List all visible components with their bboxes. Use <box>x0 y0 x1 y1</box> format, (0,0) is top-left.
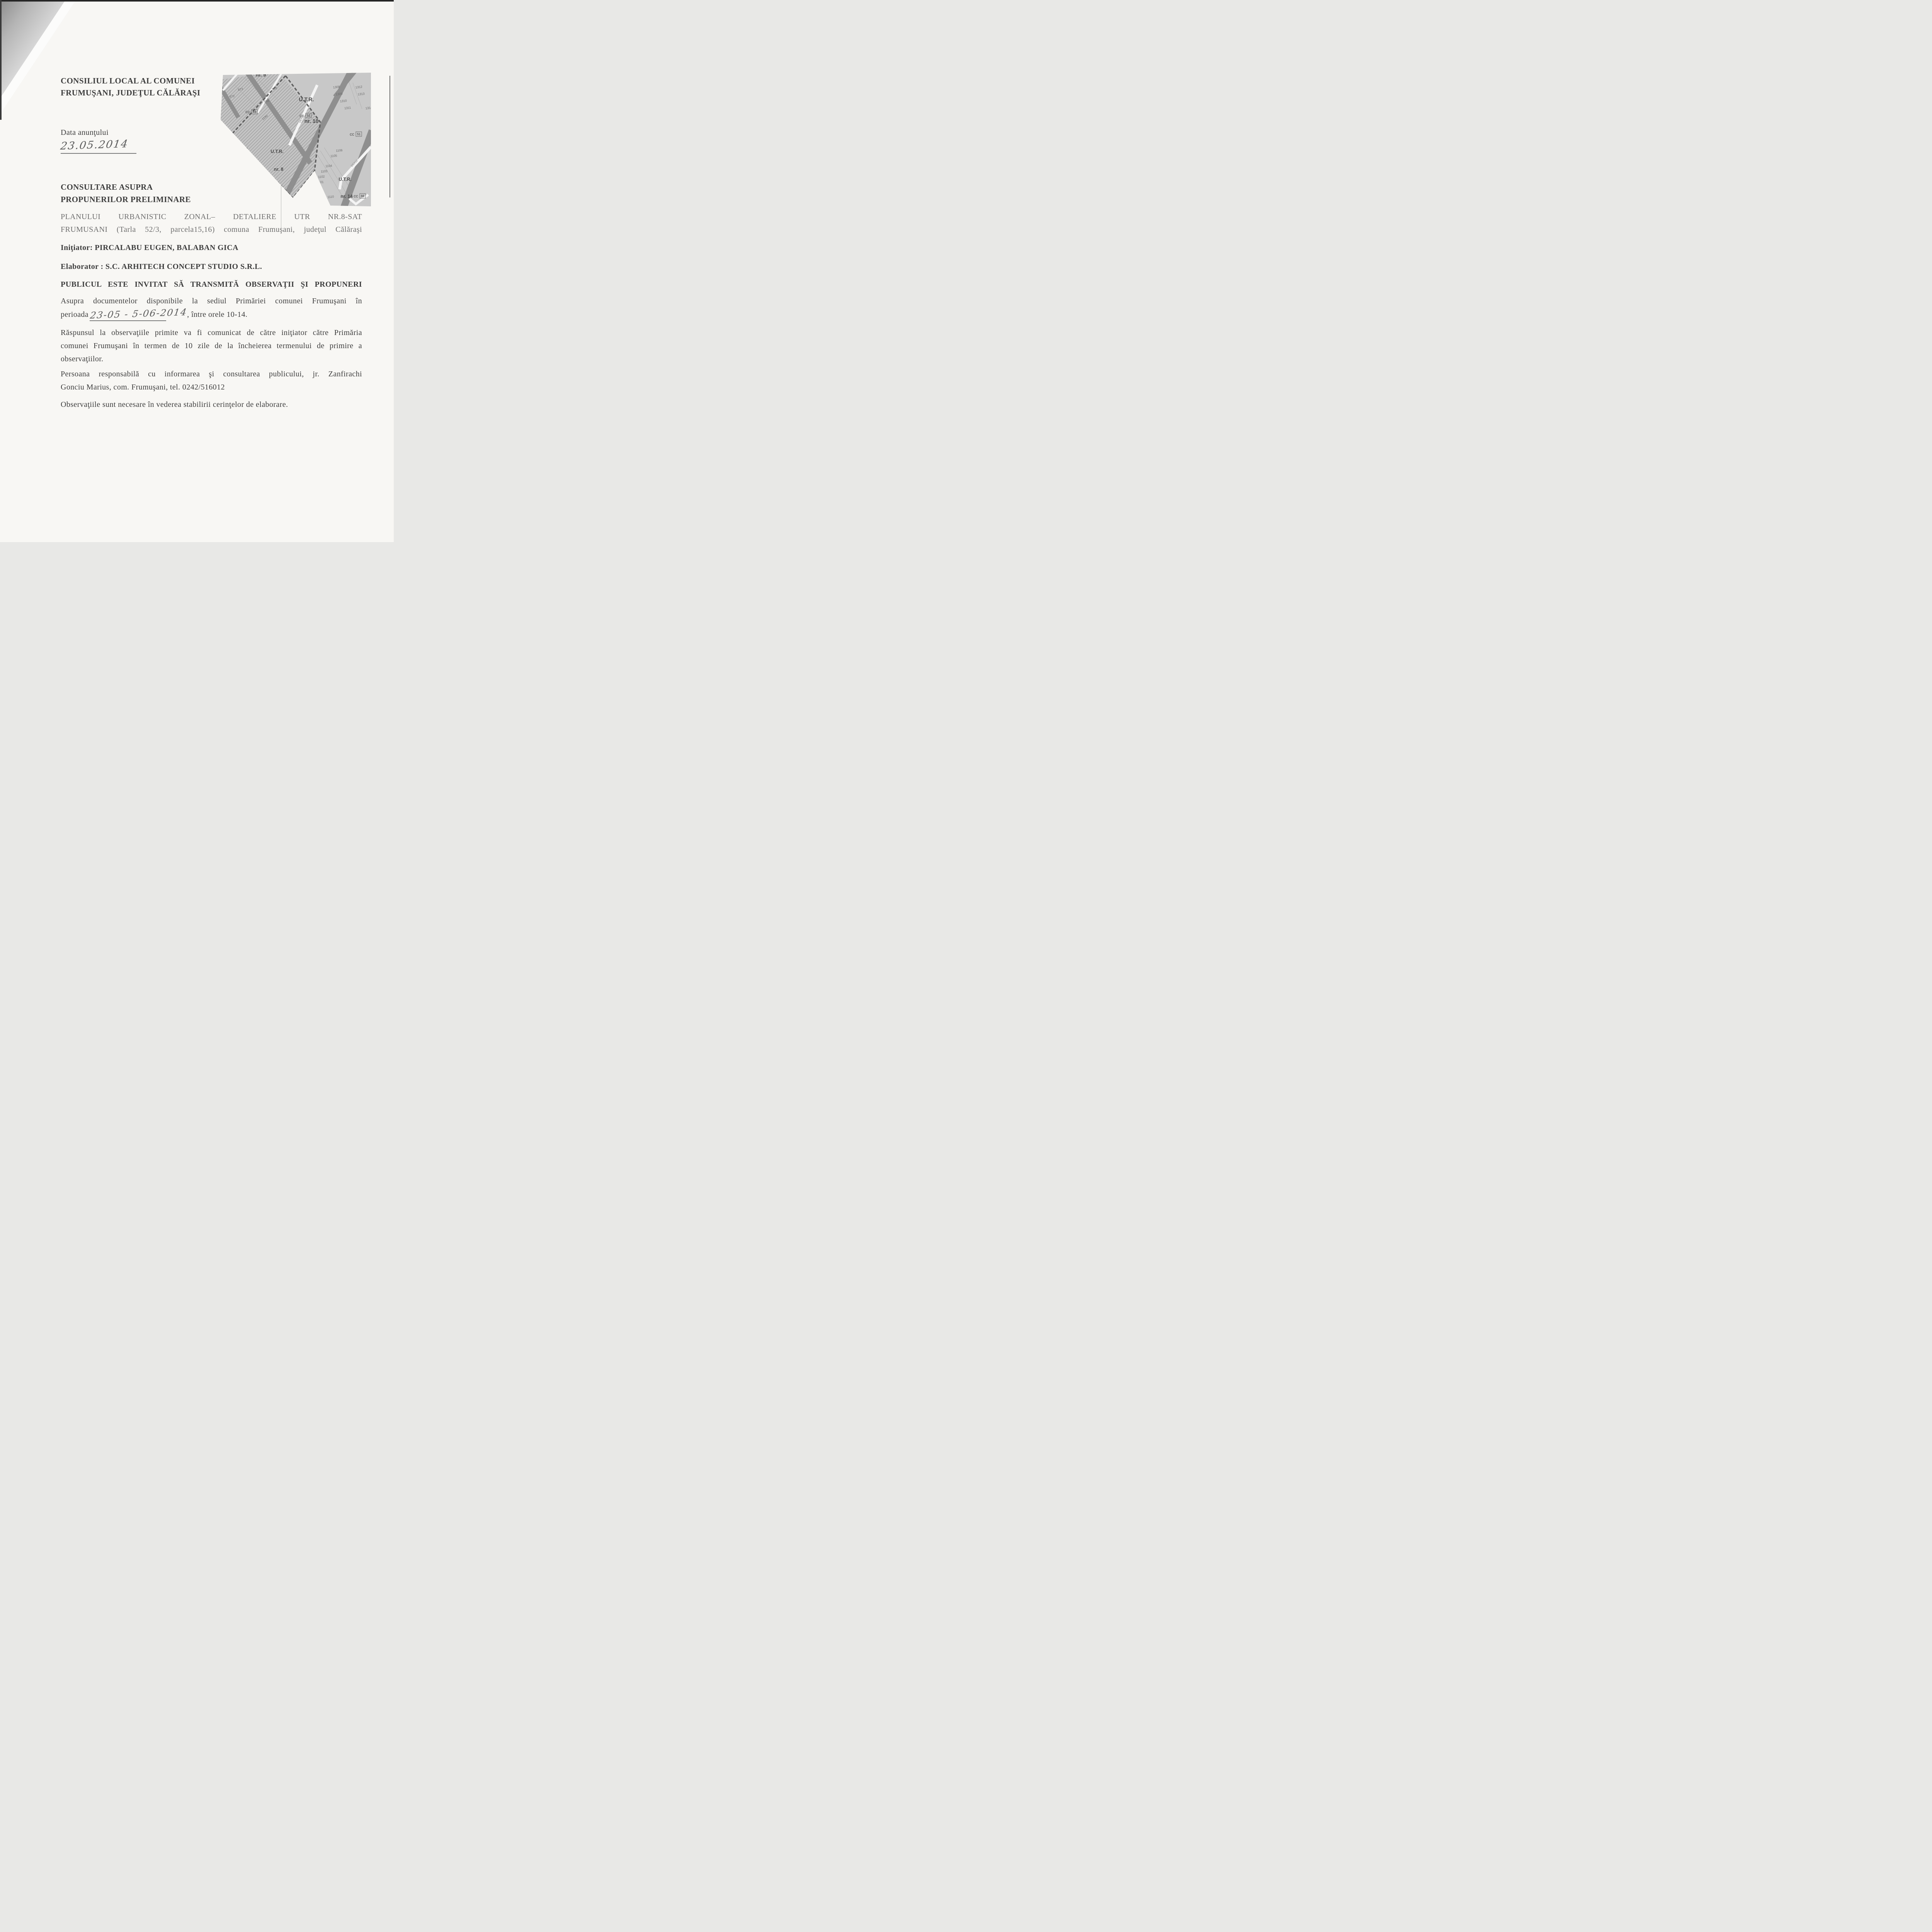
date-handwritten: 23.05.2014 <box>61 139 362 151</box>
closing-note-line: Observaţiile sunt necesare în vederea st… <box>61 400 362 409</box>
availability-prefix: perioada <box>61 310 88 319</box>
parcel-number: 1314 <box>365 106 371 110</box>
header-line-2: FRUMUŞANI, JUDEŢUL CĂLĂRAŞI <box>61 88 362 98</box>
contact-line-2: Gonciu Marius, com. Frumuşani, tel. 0242… <box>61 383 362 392</box>
utr-region-number: nr. 7 <box>240 165 249 170</box>
parcel-number: 1103 <box>321 169 328 173</box>
plan-paragraph-line-2: FRUMUSANI (Tarla 52/3, parcela15,16) com… <box>61 225 362 234</box>
utr-region-number: nr. 8 <box>274 167 284 172</box>
section-title-line-2: PROPUNERILOR PRELIMINARE <box>61 195 362 204</box>
contact-line-1: Persoana responsabilă cu informarea şi c… <box>61 370 362 379</box>
response-line-2: comunei Frumuşani în termen de 10 zile d… <box>61 342 362 350</box>
cc-number: 54 <box>253 110 256 114</box>
parcel-number: 1104 <box>325 164 332 168</box>
response-line-1: Răspunsul la observaţiile primite va fi … <box>61 328 362 337</box>
scan-right-edge-line <box>389 76 390 197</box>
parcel-number: 1102 <box>318 175 325 179</box>
plan-paragraph-line-1: PLANULUI URBANISTIC ZONAL– DETALIERE UTR… <box>61 213 362 221</box>
initiator-line: Iniţiator: PIRCALABU EUGEN, BALABAN GICA <box>61 243 362 252</box>
date-label: Data anunţului <box>61 128 362 137</box>
cc-prefix: CC <box>245 111 250 114</box>
availability-period-handwritten: 23-05 - 5-06-2014 <box>90 307 188 321</box>
invitation-line: PUBLICUL ESTE INVITAT SĂ TRANSMITĂ OBSER… <box>61 280 362 289</box>
scan-top-edge <box>0 0 394 2</box>
availability-suffix: , între orele 10-14. <box>187 310 247 319</box>
section-title-line-1: CONSULTARE ASUPRA <box>61 182 362 192</box>
scanned-document-page: nr. 9 U.T.R. nr. 7 U.T.R. nr. 8 U.T.R. n… <box>0 0 394 542</box>
availability-line-1: Asupra documentelor disponibile la sediu… <box>61 297 362 306</box>
header-line-1: CONSILIUL LOCAL AL COMUNEI <box>61 76 362 86</box>
date-handwritten-value: 23.05.2014 <box>60 138 129 152</box>
utr-region-prefix: U.T.R. <box>338 177 351 182</box>
parcel-number: 1105 <box>330 154 337 158</box>
response-line-3: observaţiilor. <box>61 355 362 364</box>
elaborator-line: Elaborator : S.C. ARHITECH CONCEPT STUDI… <box>61 262 362 271</box>
cc-number: 52 <box>307 114 310 117</box>
availability-line-2: perioada 23-05 - 5-06-2014, între orele … <box>61 308 362 319</box>
scan-left-edge <box>0 0 2 120</box>
utr-region-number: nr. 10 <box>304 118 319 124</box>
date-underline <box>61 153 136 154</box>
period-underline <box>90 320 166 321</box>
